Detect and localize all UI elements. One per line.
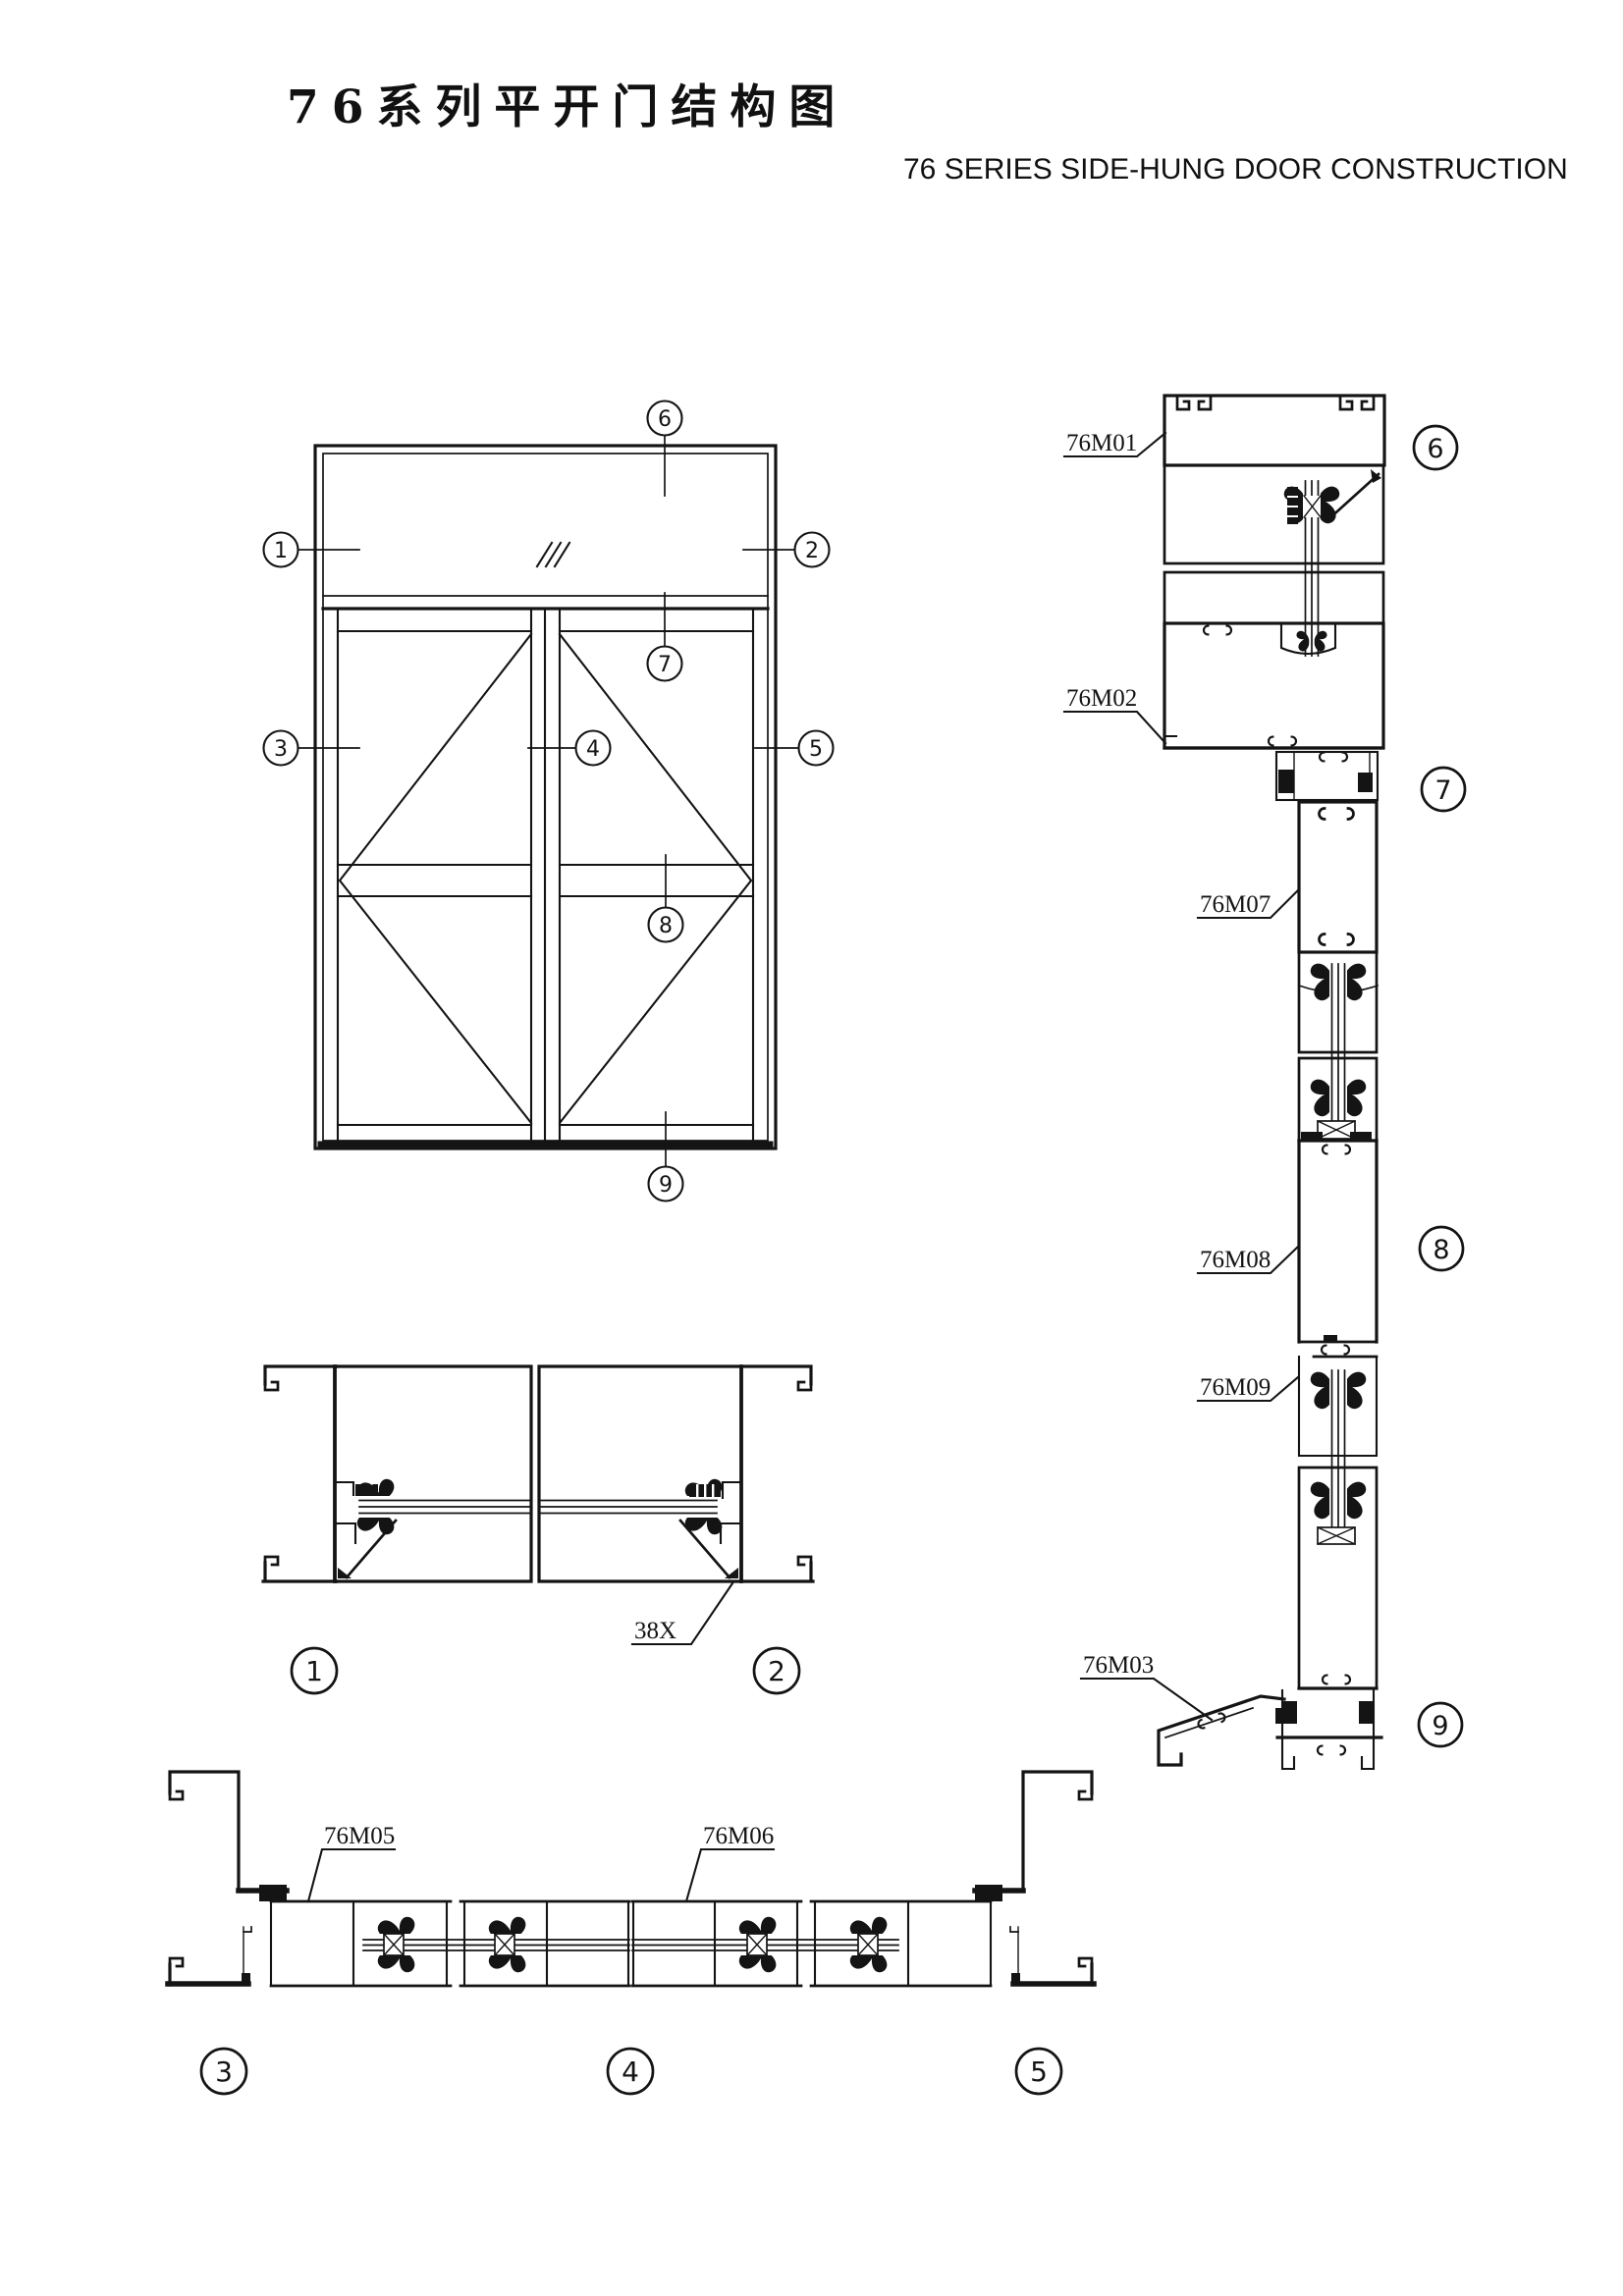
left-frame-jamb bbox=[168, 1772, 287, 1985]
right-leaf-section bbox=[632, 1901, 991, 1986]
svg-text:76M03: 76M03 bbox=[1083, 1652, 1154, 1679]
callout-6-section: 6 bbox=[1414, 426, 1457, 469]
glazing-block bbox=[1318, 1527, 1355, 1544]
profile-label-76M05: 76M05 bbox=[308, 1823, 395, 1901]
svg-text:76M06: 76M06 bbox=[703, 1823, 774, 1849]
svg-text:76M07: 76M07 bbox=[1200, 891, 1271, 918]
profile-label-76M08: 76M08 bbox=[1198, 1247, 1298, 1273]
callout-7-elevation: 7 bbox=[648, 593, 682, 681]
callout-8-section: 8 bbox=[1420, 1227, 1463, 1270]
svg-text:1: 1 bbox=[274, 539, 288, 563]
glazing-bead-38X bbox=[680, 1521, 730, 1577]
svg-text:76M08: 76M08 bbox=[1200, 1247, 1271, 1273]
callout-2-elevation: 2 bbox=[743, 533, 830, 567]
mid-rail-76M08 bbox=[1299, 1141, 1377, 1342]
drawing-sheet: 76系列平开门结构图 76 SERIES SIDE-HUNG DOOR CONS… bbox=[0, 0, 1623, 2296]
callout-5-elevation: 5 bbox=[755, 731, 834, 766]
callout-8-elevation: 8 bbox=[649, 855, 683, 942]
glazing-block bbox=[495, 1934, 514, 1955]
svg-text:9: 9 bbox=[1432, 1711, 1448, 1741]
glazing-block bbox=[384, 1934, 404, 1955]
svg-text:6: 6 bbox=[1427, 434, 1443, 464]
glass-hatch bbox=[537, 543, 569, 566]
svg-text:2: 2 bbox=[768, 1655, 785, 1687]
callout-3-elevation: 3 bbox=[264, 731, 360, 766]
svg-text:4: 4 bbox=[586, 737, 600, 762]
callout-2-detail: 2 bbox=[754, 1648, 799, 1693]
svg-text:3: 3 bbox=[274, 737, 288, 762]
callout-1-elevation: 1 bbox=[264, 533, 360, 567]
profile-label-76M07: 76M07 bbox=[1198, 890, 1298, 918]
door-top-rail-76M07 bbox=[1299, 802, 1377, 952]
profile-label-76M06: 76M06 bbox=[686, 1823, 774, 1901]
svg-text:7: 7 bbox=[1434, 775, 1451, 806]
svg-text:5: 5 bbox=[809, 737, 823, 762]
glazing-block bbox=[858, 1934, 878, 1955]
left-jamb-section bbox=[263, 1366, 396, 1581]
right-jamb-section bbox=[680, 1366, 813, 1581]
bead-label-38X: 38X bbox=[632, 1583, 732, 1644]
svg-text:76M05: 76M05 bbox=[324, 1823, 395, 1849]
callout-3-detail: 3 bbox=[201, 2049, 246, 2094]
door-elevation: 6 1 2 7 3 4 5 bbox=[264, 401, 834, 1201]
svg-text:76M01: 76M01 bbox=[1066, 430, 1137, 456]
callout-4-elevation: 4 bbox=[528, 731, 611, 766]
svg-text:3: 3 bbox=[215, 2056, 233, 2088]
vertical-section-column: 76M01 76M02 76M07 76M08 76M09 76M03 bbox=[1064, 396, 1465, 1769]
horizontal-section-transom: 38X 1 2 bbox=[263, 1366, 813, 1693]
glazing-block bbox=[1304, 496, 1321, 517]
section-detail-6 bbox=[1164, 396, 1384, 748]
svg-text:1: 1 bbox=[305, 1655, 323, 1687]
glazing-block bbox=[1318, 1121, 1355, 1139]
callout-1-detail: 1 bbox=[292, 1648, 337, 1693]
callout-6-elevation: 6 bbox=[648, 401, 682, 497]
threshold-flashing-76M03 bbox=[1159, 1696, 1287, 1765]
svg-text:6: 6 bbox=[658, 407, 672, 432]
left-leaf-section bbox=[271, 1901, 629, 1986]
construction-drawing: 6 1 2 7 3 4 5 bbox=[0, 0, 1623, 2296]
section-detail-7 bbox=[1164, 736, 1382, 1052]
svg-text:5: 5 bbox=[1030, 2056, 1048, 2088]
svg-text:8: 8 bbox=[659, 914, 673, 938]
callout-9-section: 9 bbox=[1419, 1703, 1462, 1746]
svg-text:76M09: 76M09 bbox=[1200, 1374, 1271, 1401]
horizontal-section-door: 76M05 76M06 3 4 5 bbox=[168, 1772, 1094, 2094]
profile-label-76M01: 76M01 bbox=[1064, 430, 1165, 456]
glazing-block bbox=[747, 1934, 767, 1955]
svg-text:9: 9 bbox=[659, 1173, 673, 1198]
section-detail-9 bbox=[1159, 1368, 1381, 1769]
svg-text:38X: 38X bbox=[634, 1618, 676, 1644]
callout-7-section: 7 bbox=[1422, 768, 1465, 811]
profile-label-76M09: 76M09 bbox=[1198, 1374, 1298, 1401]
svg-text:8: 8 bbox=[1433, 1235, 1449, 1265]
profile-label-76M03: 76M03 bbox=[1081, 1652, 1212, 1720]
svg-text:76M02: 76M02 bbox=[1066, 685, 1137, 712]
right-frame-jamb bbox=[975, 1772, 1094, 1985]
callout-5-detail: 5 bbox=[1016, 2049, 1061, 2094]
profile-label-76M02: 76M02 bbox=[1064, 685, 1165, 743]
svg-text:7: 7 bbox=[658, 653, 672, 677]
svg-text:4: 4 bbox=[622, 2056, 639, 2088]
callout-4-detail: 4 bbox=[608, 2049, 653, 2094]
svg-text:2: 2 bbox=[805, 539, 819, 563]
